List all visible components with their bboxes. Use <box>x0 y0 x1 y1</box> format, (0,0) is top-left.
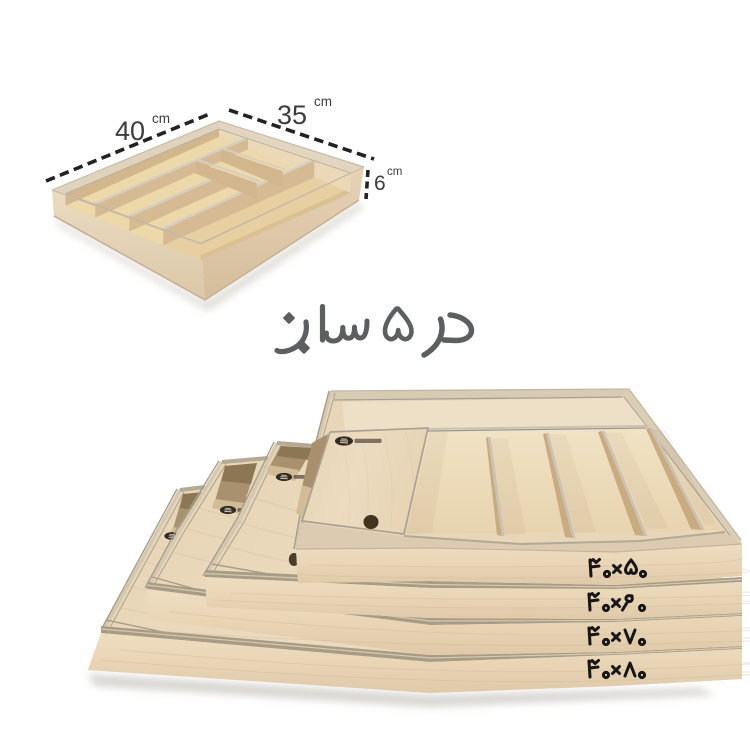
svg-text:40: 40 <box>115 116 145 146</box>
svg-text:cm: cm <box>314 94 332 109</box>
svg-text:6: 6 <box>374 172 386 195</box>
svg-text:cm: cm <box>387 166 402 178</box>
svg-text:cm: cm <box>152 111 170 126</box>
svg-text:35: 35 <box>277 100 307 130</box>
